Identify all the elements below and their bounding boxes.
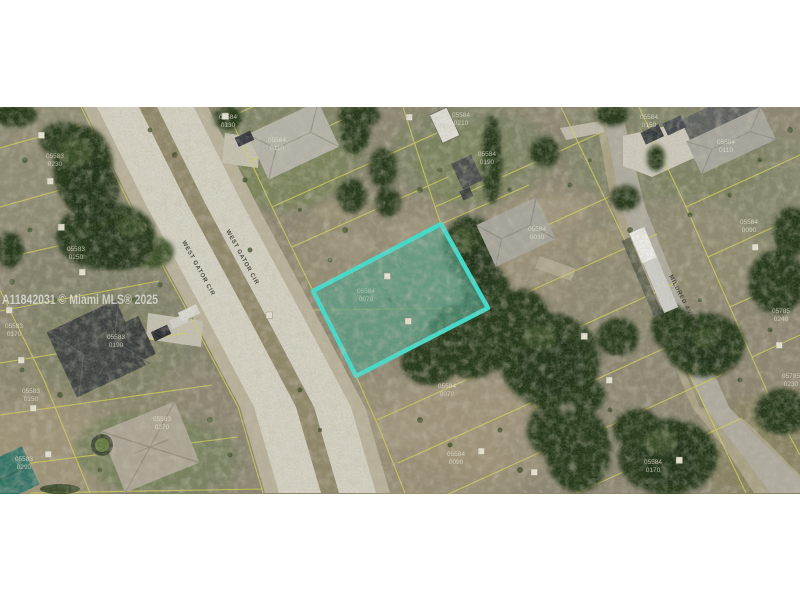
svg-text:A11842031 © Miami MLS® 2025: A11842031 © Miami MLS® 2025	[2, 292, 158, 307]
